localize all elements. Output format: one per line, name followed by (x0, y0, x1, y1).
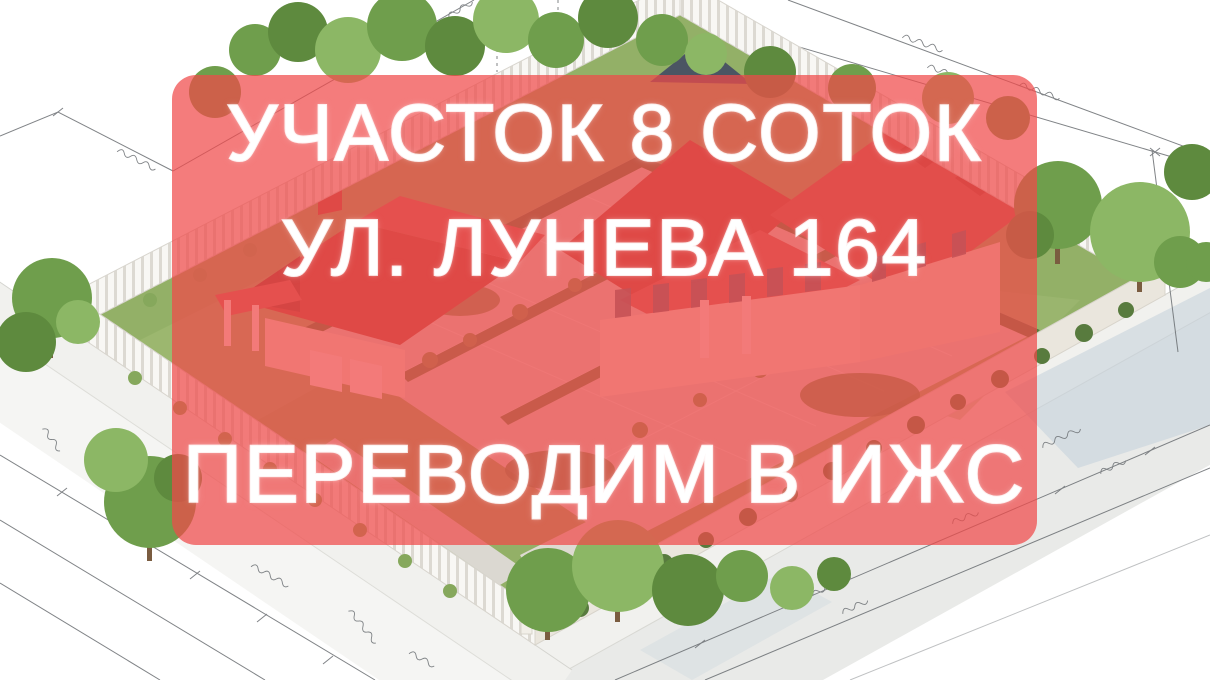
promo-overlay: УЧАСТОК 8 СОТОК УЛ. ЛУНЕВА 164 ПЕРЕВОДИМ… (172, 75, 1037, 545)
overlay-title-plot-size: УЧАСТОК 8 СОТОК (172, 93, 1037, 173)
overlay-title-status: ПЕРЕВОДИМ В ИЖС (172, 434, 1037, 516)
real-estate-promo-image: УЧАСТОК 8 СОТОК УЛ. ЛУНЕВА 164 ПЕРЕВОДИМ… (0, 0, 1210, 680)
overlay-title-address: УЛ. ЛУНЕВА 164 (172, 208, 1037, 288)
